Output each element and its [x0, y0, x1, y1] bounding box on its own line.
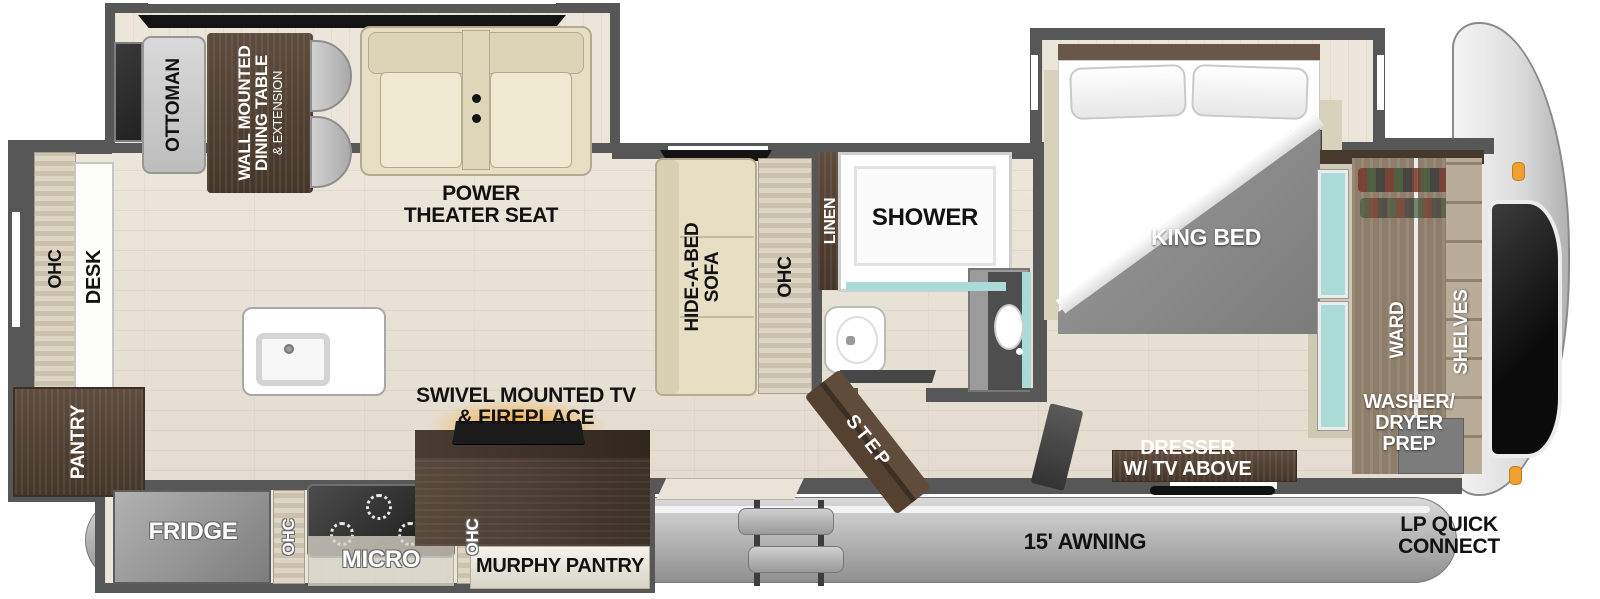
dining-line1: WALL MOUNTED	[236, 46, 254, 181]
sofa-line1: HIDE-A-BED	[683, 223, 703, 332]
sofa-line2: SOFA	[703, 252, 723, 303]
king-bed-label: KING BED	[1126, 226, 1286, 252]
sofa-label: HIDE-A-BED SOFA	[682, 202, 724, 352]
washer-dryer-label: WASHER/ DRYER PREP	[1344, 392, 1474, 462]
front-cap-window	[1488, 200, 1562, 458]
bed-rail-left	[1044, 70, 1058, 320]
living-slide-trim	[148, 0, 556, 4]
wd-line1: WASHER/	[1344, 392, 1474, 413]
ottoman-label: OTTOMAN	[164, 45, 184, 165]
ward-label: WARD	[1388, 285, 1408, 375]
rear-ohc-label: OHC	[46, 229, 64, 309]
linen-label: LINEN	[822, 176, 840, 266]
shower-label: SHOWER	[850, 206, 1000, 232]
theater-seat-label: POWER THEATER SEAT	[386, 183, 576, 229]
mirror-door-top	[1318, 170, 1348, 298]
murphy-pantry-label: MURPHY PANTRY	[474, 556, 646, 580]
marker-light-bottom	[1509, 466, 1522, 485]
cupholder-1	[472, 94, 481, 103]
bed-headboard	[1058, 44, 1320, 60]
dining-line2: DINING TABLE	[253, 55, 271, 171]
dresser-tv	[1150, 486, 1275, 495]
tv-fireplace-label: SWIVEL MOUNTED TV & FIREPLACE	[400, 385, 652, 435]
dresser-label: DRESSER W/ TV ABOVE	[1100, 438, 1275, 484]
tvfp-line1: SWIVEL MOUNTED TV	[400, 385, 652, 407]
bed-pillow-right	[1191, 64, 1309, 120]
micro-label: MICRO	[316, 548, 446, 574]
toilet-flush	[846, 336, 855, 345]
wd-line2: DRYER	[1344, 413, 1474, 434]
bed-slide-window-left	[1031, 55, 1038, 110]
floorplan-canvas: 15' AWNING LP QUICK CONNECT OTTOMAN WALL…	[0, 0, 1600, 599]
toilet-bowl	[836, 316, 878, 364]
bed-pillow-left	[1069, 64, 1187, 120]
tvfp-line2: & FIREPLACE	[400, 407, 652, 429]
kitchen-ohc-left-label: OHC	[280, 502, 298, 572]
dining-table-label: WALL MOUNTED DINING TABLE & EXTENSION	[233, 33, 287, 193]
entry-step-upper	[738, 508, 834, 535]
entry-step-lower	[748, 546, 844, 573]
shelves-label: SHELVES	[1452, 277, 1472, 387]
bath-threshold	[836, 370, 936, 383]
shower-teal-edge	[846, 282, 1006, 291]
burner-1	[366, 494, 392, 520]
theater-line1: POWER	[386, 183, 576, 205]
awning-label: 15' AWNING	[1000, 531, 1170, 557]
sofa-back	[657, 160, 679, 394]
hanging-clothes-row2	[1360, 198, 1458, 218]
rear-wall-window	[12, 212, 20, 327]
sofa-ohc-label: OHC	[776, 237, 796, 317]
desk-label: DESK	[84, 232, 104, 322]
theater-seat-cushion-right	[490, 72, 572, 168]
theater-seat-cushion-left	[380, 72, 462, 168]
vanity-faucet	[1016, 348, 1023, 355]
island-faucet	[284, 344, 294, 354]
cupholder-2	[472, 114, 481, 123]
entry-landing	[656, 478, 804, 500]
slide-end-cabinet	[114, 42, 143, 142]
dresser-line1: DRESSER	[1100, 438, 1275, 459]
island-sink	[256, 333, 330, 386]
lp-quick-connect-label: LP QUICK CONNECT	[1378, 514, 1520, 562]
lp-line2: CONNECT	[1378, 536, 1520, 558]
dresser-line2: W/ TV ABOVE	[1100, 459, 1275, 480]
lp-line1: LP QUICK	[1378, 514, 1520, 536]
marker-light-top	[1512, 162, 1525, 181]
wd-line3: PREP	[1344, 434, 1474, 455]
pantry-label: PANTRY	[69, 387, 89, 497]
bed-slide-window-right	[1377, 55, 1384, 110]
vanity-sink	[994, 304, 1024, 350]
fridge-label: FRIDGE	[128, 520, 258, 546]
dining-line3: & EXTENSION	[271, 71, 285, 155]
theater-line2: THEATER SEAT	[386, 205, 576, 227]
